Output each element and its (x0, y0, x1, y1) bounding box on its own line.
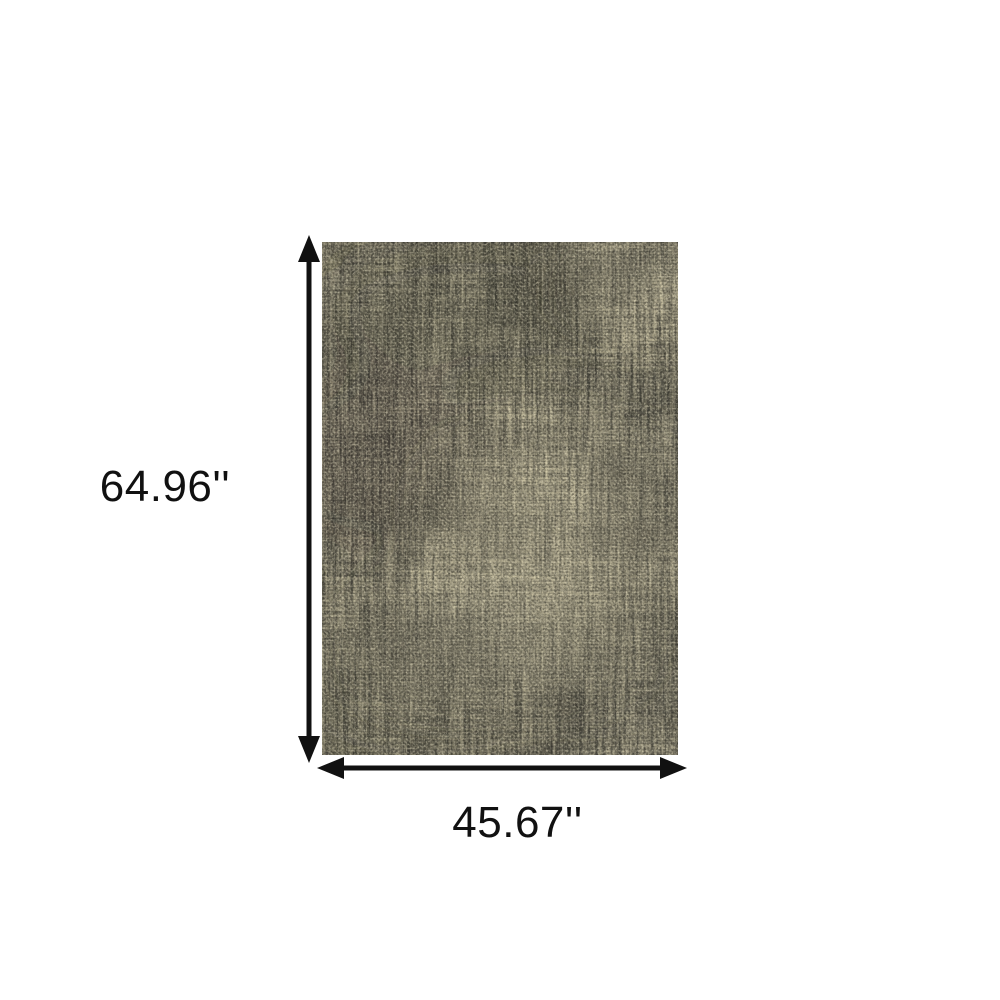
height-dimension-arrow (295, 232, 325, 766)
height-label: 64.96'' (55, 460, 275, 514)
rug-light-grain-layer (322, 242, 678, 755)
width-dimension-arrow (312, 752, 692, 784)
width-label: 45.67'' (405, 796, 630, 850)
product-dimension-image: 64.96'' 45.67'' (0, 0, 1000, 1000)
rug-image (322, 242, 678, 755)
rug-texture (322, 242, 678, 755)
arrowhead-left-icon (317, 757, 344, 779)
arrowhead-up-icon (298, 235, 320, 262)
arrowhead-right-icon (660, 757, 687, 779)
